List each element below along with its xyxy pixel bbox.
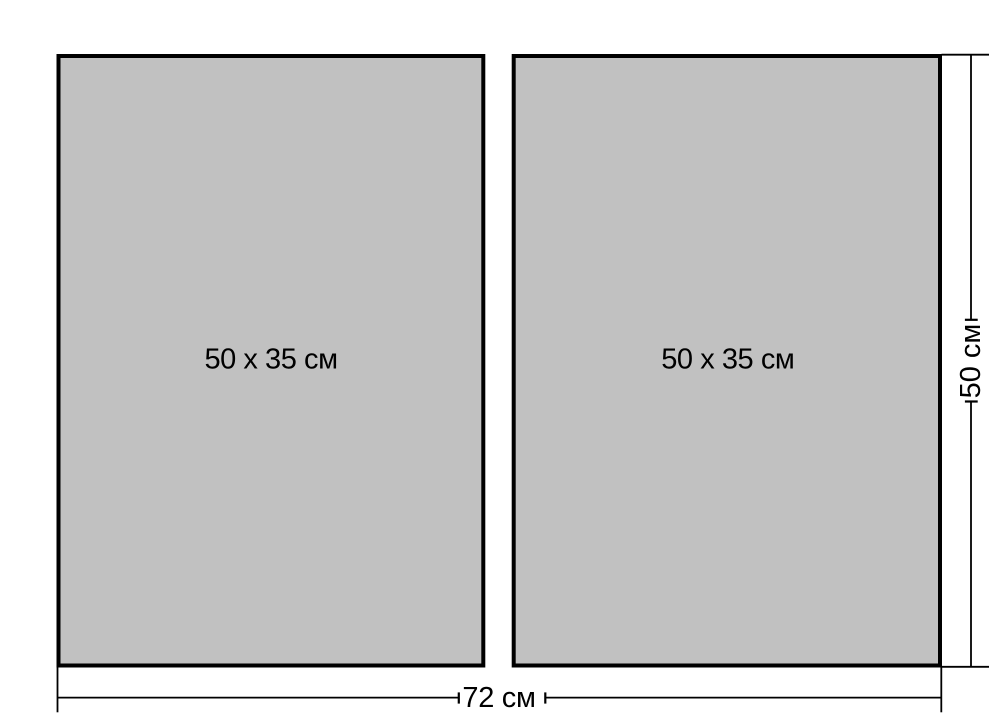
svg-text:50 см: 50 см [955, 324, 987, 399]
svg-text:72 см: 72 см [462, 682, 535, 714]
svg-text:50 x 35 см: 50 x 35 см [661, 344, 794, 376]
svg-text:50 x 35 см: 50 x 35 см [204, 344, 337, 376]
